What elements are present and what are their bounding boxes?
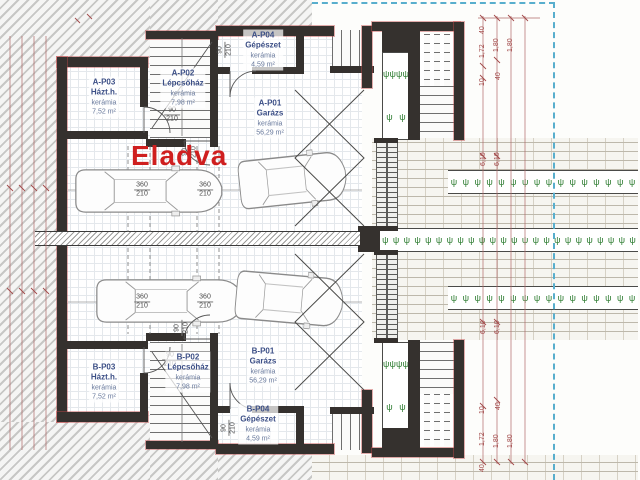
dim-right-bot-2: 1,72	[479, 432, 486, 446]
door-dim-bp04: 90210	[220, 420, 237, 436]
dim-right-bot-5: 40	[479, 464, 486, 472]
plan-linework	[0, 0, 640, 480]
dim-drive-top-1: 6,10	[494, 152, 501, 166]
sold-stamp: Eladva	[131, 140, 227, 172]
garage-dim-b2: 360210	[197, 293, 213, 310]
garage-dim-b1: 360210	[134, 293, 150, 310]
dim-right-top-4: 10	[479, 78, 486, 86]
dim-right-top-2: 1,80	[493, 38, 500, 52]
dim-right-bot-1: 40	[495, 402, 502, 410]
dim-drive-bot-1: 6,10	[494, 320, 501, 334]
door-dim-ap04: 90210	[216, 42, 233, 58]
room-label-b-p04: B-P04 Gépészet kerámia 4,59 m²	[238, 404, 278, 445]
property-boundary-top	[312, 2, 555, 4]
garage-dim-a1: 360210	[134, 181, 150, 198]
room-label-b-p03: B-P03 Házt.h. kerámia 7,52 m²	[89, 362, 119, 403]
room-label-a-p03: A-P03 Házt.h. kerámia 7,52 m²	[89, 77, 119, 118]
room-label-b-p02: B-P02 Lépcsőház kerámia 7,98 m²	[165, 352, 210, 393]
dim-right-bot-3: 1,80	[493, 434, 500, 448]
room-label-a-p01: A-P01 Garázs kerámia 56,29 m²	[254, 98, 286, 139]
floor-plan-canvas: ψψψψψψψψψψψψψψψψ ψψψψψψψψψψψψψψψψψψψψψψψ…	[0, 0, 640, 480]
dim-right-top-3: 1,80	[507, 38, 514, 52]
door-dim-ap03: 90210	[164, 106, 180, 123]
door-dim-tower-b: 90210	[173, 320, 190, 336]
room-label-a-p04: A-P04 Gépészet kerámia 4,59 m²	[243, 30, 283, 71]
dim-right-top-0: 40	[479, 26, 486, 34]
property-boundary-right	[553, 2, 555, 480]
dim-right-bot-4: 1,80	[507, 434, 514, 448]
dim-drive-top-0: 6,10	[480, 152, 487, 166]
dim-right-top-5: 40	[495, 72, 502, 80]
dim-right-top-1: 1,72	[479, 44, 486, 58]
dim-right-bot-0: 10	[479, 406, 486, 414]
room-label-b-p01: B-P01 Garázs kerámia 56,29 m²	[247, 346, 279, 387]
garage-dim-a2: 360210	[197, 181, 213, 198]
room-label-a-p02: A-P02 Lépcsőház kerámia 7,98 m²	[160, 68, 205, 109]
dim-drive-bot-0: 6,10	[480, 320, 487, 334]
